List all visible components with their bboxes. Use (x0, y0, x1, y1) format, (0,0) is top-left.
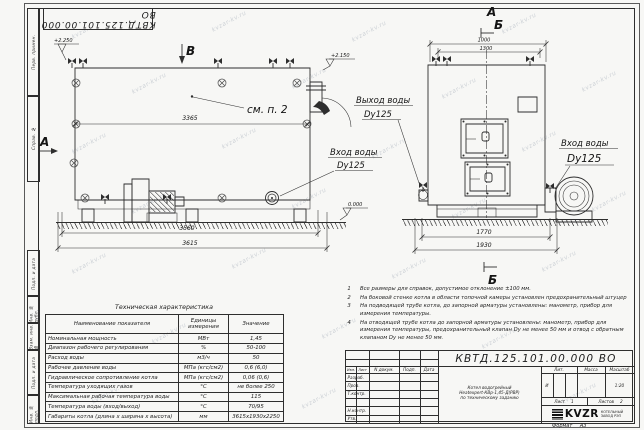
logo-caption-line: ЗАВОД РЭП (601, 414, 621, 418)
valve-icon (269, 58, 277, 68)
svg-text:+2.250: +2.250 (54, 38, 73, 44)
dimension-3365: 3365 (73, 115, 311, 127)
instrument-point-icon (70, 159, 78, 167)
tech-table-header-row: Наименование показателя Единицы измерени… (46, 315, 284, 334)
see-note-2: см. п. 2 (191, 95, 288, 116)
rear-outlet (306, 82, 351, 127)
view-b-marker-bottom: Б (484, 262, 497, 287)
table-row: Диапазон рабочего регулирования % 50-100 (46, 344, 284, 354)
valve-icon (526, 56, 534, 66)
elevation-2250: +2.250 (54, 38, 79, 60)
format-value: А3 (580, 423, 587, 429)
valve-icon (101, 194, 109, 204)
instrument-point-icon (293, 79, 301, 87)
valve-icon (286, 58, 294, 68)
svg-text:Вход воды: Вход воды (330, 148, 378, 158)
param-units: МПа (кгс/см2) (179, 363, 229, 373)
svg-text:Вход воды: Вход воды (561, 139, 609, 149)
table-row: Гидравлическое сопротивление котла МПа (… (46, 373, 284, 383)
table-row: Габариты котла (длина х ширина х высота)… (46, 412, 284, 422)
table-row: Расход воды м3/ч 50 (46, 353, 284, 363)
elevation-2150: +2.150 (323, 53, 355, 70)
note-text: Все размеры для справок, допустимое откл… (360, 286, 531, 294)
lit-header: Лит. (541, 366, 577, 373)
role-razrab: Разраб. (346, 373, 371, 381)
valve-icon (443, 56, 451, 66)
instrument-point-icon (81, 194, 89, 202)
kvzr-logo: KVZR КОТЕЛЬНЫЙ ЗАВОД РЭП (552, 408, 623, 420)
param-value: 0,06 (0,6) (229, 373, 284, 383)
water-outlet-nozzle (419, 182, 429, 201)
left-view-drawing: 3365 3560 3615 В (39, 38, 382, 252)
lit-value: И (541, 373, 553, 397)
valve-icon (214, 58, 222, 68)
dimension-1300: 1300 (436, 46, 543, 58)
svg-text:0.000: 0.000 (348, 202, 362, 208)
sheet-label: Лист (554, 399, 565, 404)
valve-icon (68, 58, 76, 68)
water-inlet-flange (266, 192, 279, 205)
param-name: Диапазон рабочего регулирования (46, 344, 179, 354)
kvzr-logo-icon (552, 409, 563, 420)
section-a-marker-left: А (39, 135, 58, 154)
svg-text:Dy125: Dy125 (364, 110, 392, 120)
param-name: Номинальная мощность (46, 334, 179, 344)
burner-motor (124, 179, 184, 222)
logo-cell: KVZR КОТЕЛЬНЫЙ ЗАВОД РЭП (541, 405, 634, 423)
dimension-1770: 1770 (420, 218, 553, 241)
role-utv: Утв. (346, 415, 371, 423)
product-description: Котел водогрейный Heatexpert-КВр-1,45-Д(… (438, 366, 541, 415)
svg-text:3615: 3615 (182, 240, 197, 247)
param-name: Температура воды (вход/выход) (46, 402, 179, 412)
svg-text:3365: 3365 (182, 115, 197, 122)
note-text: На подводящей трубе котла, до запорной а… (360, 303, 632, 318)
dimension-1930: 1930 (413, 218, 560, 254)
sheet-cell: Лист 1 (541, 397, 587, 405)
logo-caption-line: КОТЕЛЬНЫЙ (601, 410, 623, 414)
right-view-drawing: 1000 1300 1770 1930 (354, 5, 618, 287)
param-units: МВт (179, 334, 229, 344)
note-item: 1 Все размеры для справок, допустимое от… (345, 286, 632, 294)
title-block: КВТД.125.101.00.000 ВО Изм. Лист N докум… (345, 350, 633, 422)
note-number: 3 (345, 303, 353, 318)
param-value: 50-100 (229, 344, 284, 354)
view-b-marker-top: Б (481, 18, 503, 38)
param-name: Гидравлическое сопротивление котла (46, 373, 179, 383)
svg-text:А: А (486, 5, 496, 19)
svg-text:В: В (186, 44, 195, 58)
sheets-label: Листов (598, 399, 614, 404)
note-text: На отводящей трубе котла до запорной арм… (360, 320, 632, 343)
mass-header: Масса (577, 366, 605, 373)
elevation-0000: 0.000 (340, 202, 368, 220)
notes-list: 1 Все размеры для справок, допустимое от… (345, 286, 632, 344)
doc-number: КВТД.125.101.00.000 ВО (455, 353, 616, 365)
param-units: % (179, 344, 229, 354)
svg-text:Б: Б (494, 18, 503, 32)
kvzr-logo-text: KVZR (565, 408, 599, 420)
param-value: не более 250 (229, 383, 284, 393)
param-units: °С (179, 402, 229, 412)
note-item: 4 На отводящей трубе котла до запорной а… (345, 320, 632, 343)
water-outlet-label: Выход воды Dy125 (354, 96, 425, 190)
table-row: Рабочее давление воды МПа (кгс/см2) 0,6 … (46, 363, 284, 373)
svg-text:1300: 1300 (480, 46, 493, 52)
param-name: Температура уходящих газов (46, 383, 179, 393)
tech-col-value: Значение (229, 315, 284, 334)
instrument-point-icon (218, 194, 226, 202)
table-row: Номинальная мощность МВт 1,45 (46, 334, 284, 344)
param-units: °С (179, 392, 229, 402)
instrument-point-icon (218, 79, 226, 87)
sheet-value: 1 (571, 399, 574, 404)
svg-text:3560: 3560 (179, 225, 194, 232)
svg-text:1000: 1000 (478, 38, 491, 44)
param-units: °С (179, 383, 229, 393)
instrument-point-icon (72, 79, 80, 87)
tech-table: Наименование показателя Единицы измерени… (45, 314, 284, 422)
col-doc: N докум. (369, 366, 399, 373)
tech-col-units: Единицы измерения (179, 315, 229, 334)
param-value: 1,45 (229, 334, 284, 344)
param-units: м3/ч (179, 353, 229, 363)
param-value: 0,6 (6,0) (229, 363, 284, 373)
svg-text:А: А (39, 135, 49, 149)
param-name: Расход воды (46, 353, 179, 363)
scale-value: 1:20 (605, 373, 634, 397)
param-value: 50 (229, 353, 284, 363)
format-label: Формат А3 (552, 423, 593, 429)
drawing-sheet: kvzar-kv.ru kvzar-kv.ru kvzar-kv.ru kvza… (0, 0, 644, 430)
note-number: 2 (345, 295, 353, 303)
svg-text:1770: 1770 (476, 229, 491, 236)
col-date: Дата (420, 366, 438, 373)
sheets-value: 2 (620, 399, 623, 404)
scale-header: Масштаб (605, 366, 634, 373)
table-row: Температура уходящих газов °С не более 2… (46, 383, 284, 393)
svg-text:Выход воды: Выход воды (356, 96, 410, 106)
fan-blower (545, 177, 593, 222)
param-name: Максимальная рабочая температура воды (46, 392, 179, 402)
kvzr-logo-caption: КОТЕЛЬНЫЙ ЗАВОД РЭП (601, 410, 623, 419)
view-a-marker-top: А (486, 5, 496, 19)
param-value: 70/95 (229, 402, 284, 412)
dimension-3560: 3560 (60, 210, 321, 237)
role-nkontr: Н.контр. (346, 406, 371, 414)
note-number: 1 (345, 286, 353, 294)
description-line: по техническому заданию (460, 395, 518, 400)
note-number: 4 (345, 320, 353, 343)
note-item: 2 На боковой стенке котла в области топо… (345, 295, 632, 303)
table-row: Температура воды (вход/выход) °С 70/95 (46, 402, 284, 412)
param-units: МПа (кгс/см2) (179, 373, 229, 383)
tech-col-name: Наименование показателя (46, 315, 179, 334)
svg-text:Dy125: Dy125 (567, 153, 602, 165)
note-text: На боковой стенке котла в области топочн… (360, 295, 627, 303)
role-tkontr: Т.контр. (346, 390, 371, 398)
valve-icon (79, 58, 87, 68)
upper-door (461, 119, 508, 158)
valve-icon (432, 56, 440, 66)
dimension-3615: 3615 (56, 212, 330, 252)
param-name: Рабочее давление воды (46, 363, 179, 373)
param-units: мм (179, 412, 229, 422)
view-b-marker: В (179, 44, 195, 64)
col-list: Лист (356, 366, 369, 373)
svg-text:Dy125: Dy125 (337, 161, 365, 171)
doc-number-cell: КВТД.125.101.00.000 ВО (438, 351, 634, 366)
water-inlet-left-label: Вход воды Dy125 (280, 148, 382, 196)
tech-table-title: Техническая характеристика (45, 304, 283, 311)
col-izm: Изм. (346, 366, 356, 373)
valve-icon (163, 194, 171, 204)
param-name: Габариты котла (длина х ширина х высота) (46, 412, 179, 422)
param-value: 3615х1930х2250 (229, 412, 284, 422)
param-value: 115 (229, 392, 284, 402)
format-word: Формат (552, 423, 572, 429)
sheets-cell: Листов 2 (587, 397, 634, 405)
svg-text:1930: 1930 (476, 242, 491, 249)
lower-door (465, 162, 510, 196)
svg-text:см. п. 2: см. п. 2 (247, 104, 288, 116)
role-prov: Пров. (346, 381, 371, 389)
col-sign: Подп. (399, 366, 420, 373)
note-item: 3 На подводящей трубе котла, до запорной… (345, 303, 632, 318)
svg-text:Б: Б (488, 273, 497, 287)
svg-text:+2.150: +2.150 (331, 53, 350, 59)
table-row: Максимальная рабочая температура воды °С… (46, 392, 284, 402)
